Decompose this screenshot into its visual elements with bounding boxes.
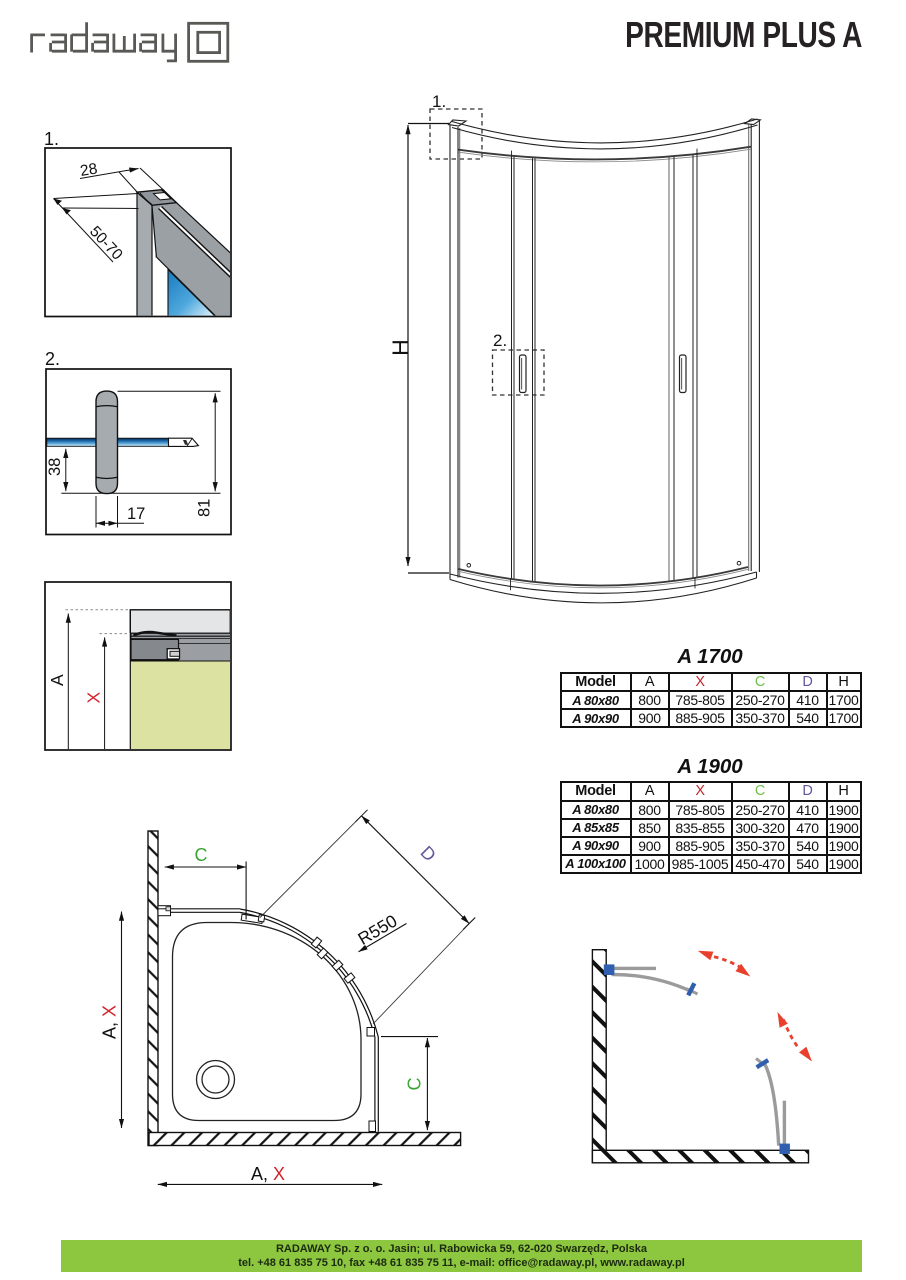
svg-text:A, X: A, X <box>251 1164 285 1184</box>
svg-text:2.: 2. <box>45 349 60 369</box>
svg-text:1.: 1. <box>432 92 446 111</box>
svg-text:A, X: A, X <box>100 1005 120 1039</box>
svg-text:H: H <box>388 339 414 356</box>
svg-text:C: C <box>195 845 208 865</box>
svg-text:28: 28 <box>79 160 99 179</box>
svg-text:17: 17 <box>127 505 145 523</box>
svg-text:2.: 2. <box>493 331 507 350</box>
svg-text:38: 38 <box>46 458 64 476</box>
svg-text:C: C <box>405 1078 425 1091</box>
svg-text:D: D <box>417 842 440 865</box>
svg-text:A: A <box>47 674 67 686</box>
svg-text:R550: R550 <box>354 910 400 949</box>
svg-text:81: 81 <box>196 499 214 517</box>
svg-text:1.: 1. <box>44 129 59 149</box>
svg-text:X: X <box>83 692 103 704</box>
